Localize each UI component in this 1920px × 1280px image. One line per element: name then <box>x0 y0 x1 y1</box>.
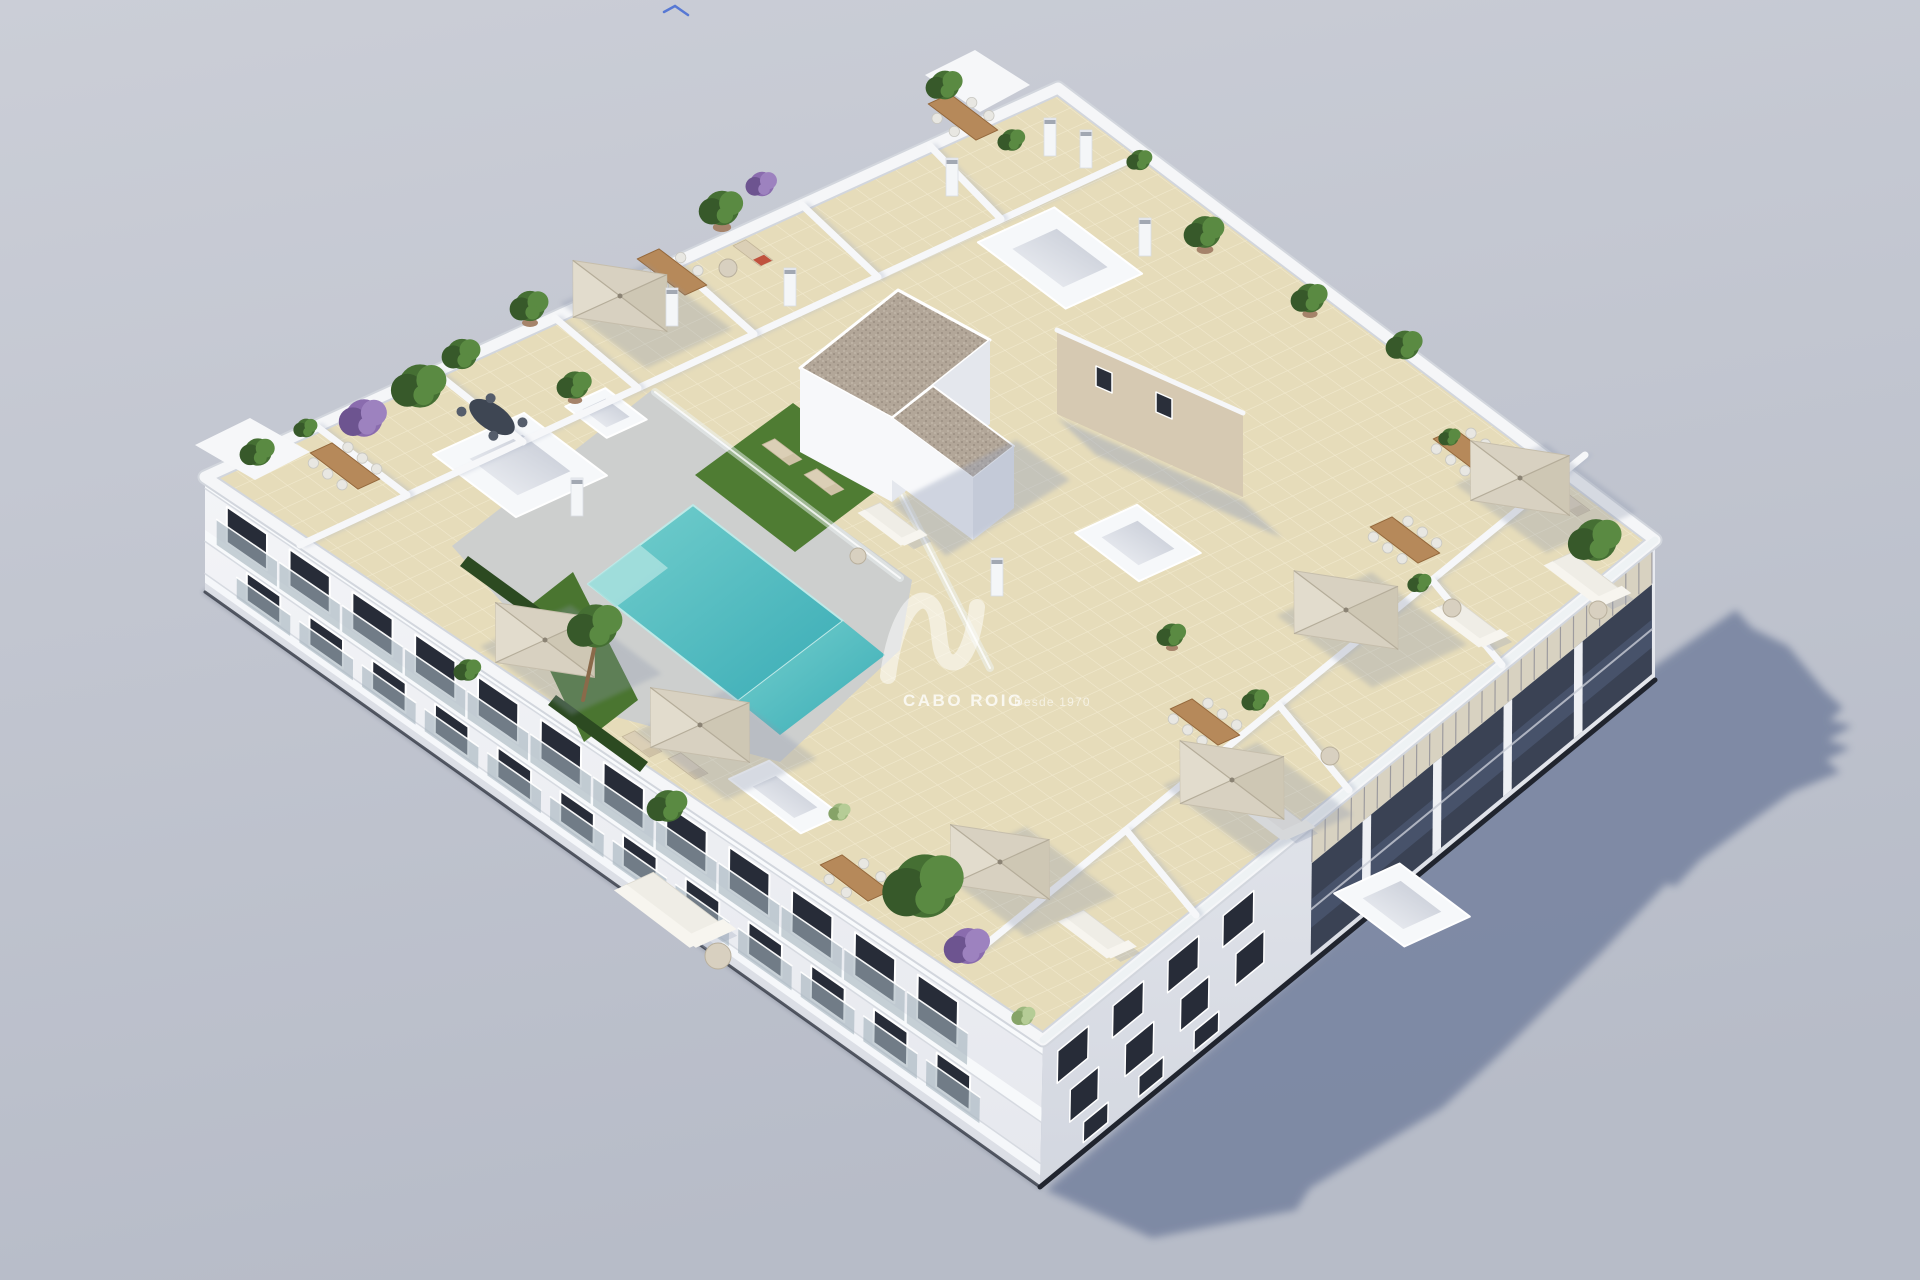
plant <box>1306 297 1320 311</box>
render-canvas: CABO ROIG Desde 1970 <box>0 0 1920 1280</box>
plant <box>1447 437 1455 445</box>
plant <box>457 353 471 367</box>
chair <box>949 126 959 136</box>
side-table <box>719 259 737 277</box>
plant <box>1137 159 1147 169</box>
plant <box>915 884 945 914</box>
plant <box>1417 582 1426 591</box>
parasol-pole <box>618 294 623 299</box>
scene-layers <box>0 0 1920 1280</box>
chair <box>337 480 347 490</box>
watermark-brand: CABO ROIG <box>903 691 1024 710</box>
plant <box>525 305 539 319</box>
chair <box>841 887 851 897</box>
chair <box>1168 714 1178 724</box>
parasol-pole <box>698 723 703 728</box>
chair <box>824 874 834 884</box>
chair <box>693 265 703 275</box>
plant <box>413 385 433 405</box>
plant <box>837 812 845 820</box>
chair <box>675 252 685 262</box>
chair <box>932 113 942 123</box>
chair <box>343 442 353 452</box>
plant <box>1168 634 1179 645</box>
plant <box>465 669 475 679</box>
plant <box>663 805 678 820</box>
plant <box>303 427 312 436</box>
side-table <box>705 943 731 969</box>
chair <box>1183 725 1193 735</box>
chair <box>858 858 868 868</box>
chair <box>876 871 886 881</box>
plant <box>1590 539 1610 559</box>
chair <box>1231 720 1241 730</box>
plant <box>1401 344 1415 358</box>
chair <box>984 110 994 120</box>
plant <box>758 183 770 195</box>
chair <box>1203 698 1213 708</box>
chair <box>323 469 333 479</box>
chair <box>371 464 381 474</box>
chair <box>1431 538 1441 548</box>
chair <box>1446 455 1456 465</box>
chair <box>1466 428 1476 438</box>
plant <box>1200 231 1215 246</box>
plant <box>717 207 733 223</box>
parasol-pole <box>998 860 1003 865</box>
aerial-render: CABO ROIG Desde 1970 <box>0 0 1920 1280</box>
parasol-pole <box>1344 608 1349 613</box>
side-table <box>850 548 866 564</box>
side-table <box>1321 747 1339 765</box>
chair <box>1403 516 1413 526</box>
plant <box>941 84 955 98</box>
plant <box>1009 139 1019 149</box>
chair <box>966 97 976 107</box>
chair <box>308 458 318 468</box>
chair <box>1383 543 1393 553</box>
chair <box>1368 532 1378 542</box>
chair-dark <box>486 393 496 403</box>
chair-dark <box>518 417 528 427</box>
watermark-tagline: Desde 1970 <box>1014 695 1091 709</box>
chair-dark <box>457 407 467 417</box>
plant <box>254 451 267 464</box>
chair <box>1431 444 1441 454</box>
chair <box>1460 466 1470 476</box>
chair-dark <box>488 431 498 441</box>
chair <box>1217 709 1227 719</box>
chair <box>1397 554 1407 564</box>
chair <box>1417 527 1427 537</box>
plant <box>358 417 376 435</box>
plant <box>571 384 584 397</box>
side-table <box>1589 601 1607 619</box>
parasol-pole <box>1518 476 1523 481</box>
plant <box>589 625 609 645</box>
side-table <box>1443 599 1461 617</box>
plant <box>1021 1015 1030 1024</box>
chair <box>357 453 367 463</box>
plant <box>1253 699 1263 709</box>
parasol-pole <box>1230 778 1235 783</box>
parasol-pole <box>543 638 548 643</box>
plant <box>963 945 980 962</box>
